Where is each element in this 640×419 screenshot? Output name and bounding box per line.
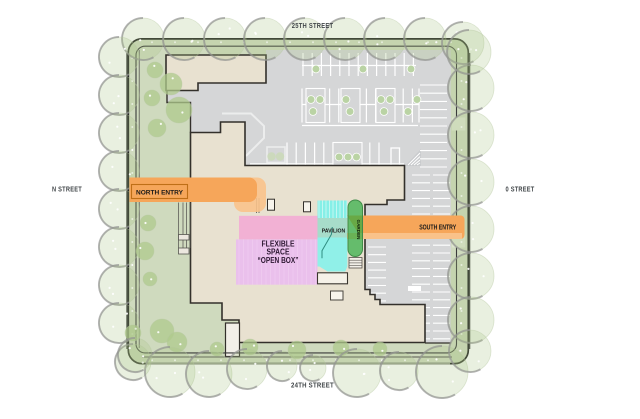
svg-text:25TH STREET: 25TH STREET — [292, 21, 334, 30]
svg-text:NORTH ENTRY: NORTH ENTRY — [136, 189, 184, 196]
svg-text:24TH STREET: 24TH STREET — [291, 381, 334, 390]
svg-text:N STREET: N STREET — [52, 184, 82, 193]
svg-text:“OPEN BOX”: “OPEN BOX” — [258, 256, 299, 265]
svg-text:0 STREET: 0 STREET — [506, 184, 535, 193]
svg-text:PAVILION: PAVILION — [322, 229, 346, 235]
svg-text:GARDEN: GARDEN — [355, 220, 361, 240]
svg-text:SOUTH ENTRY: SOUTH ENTRY — [419, 225, 456, 232]
